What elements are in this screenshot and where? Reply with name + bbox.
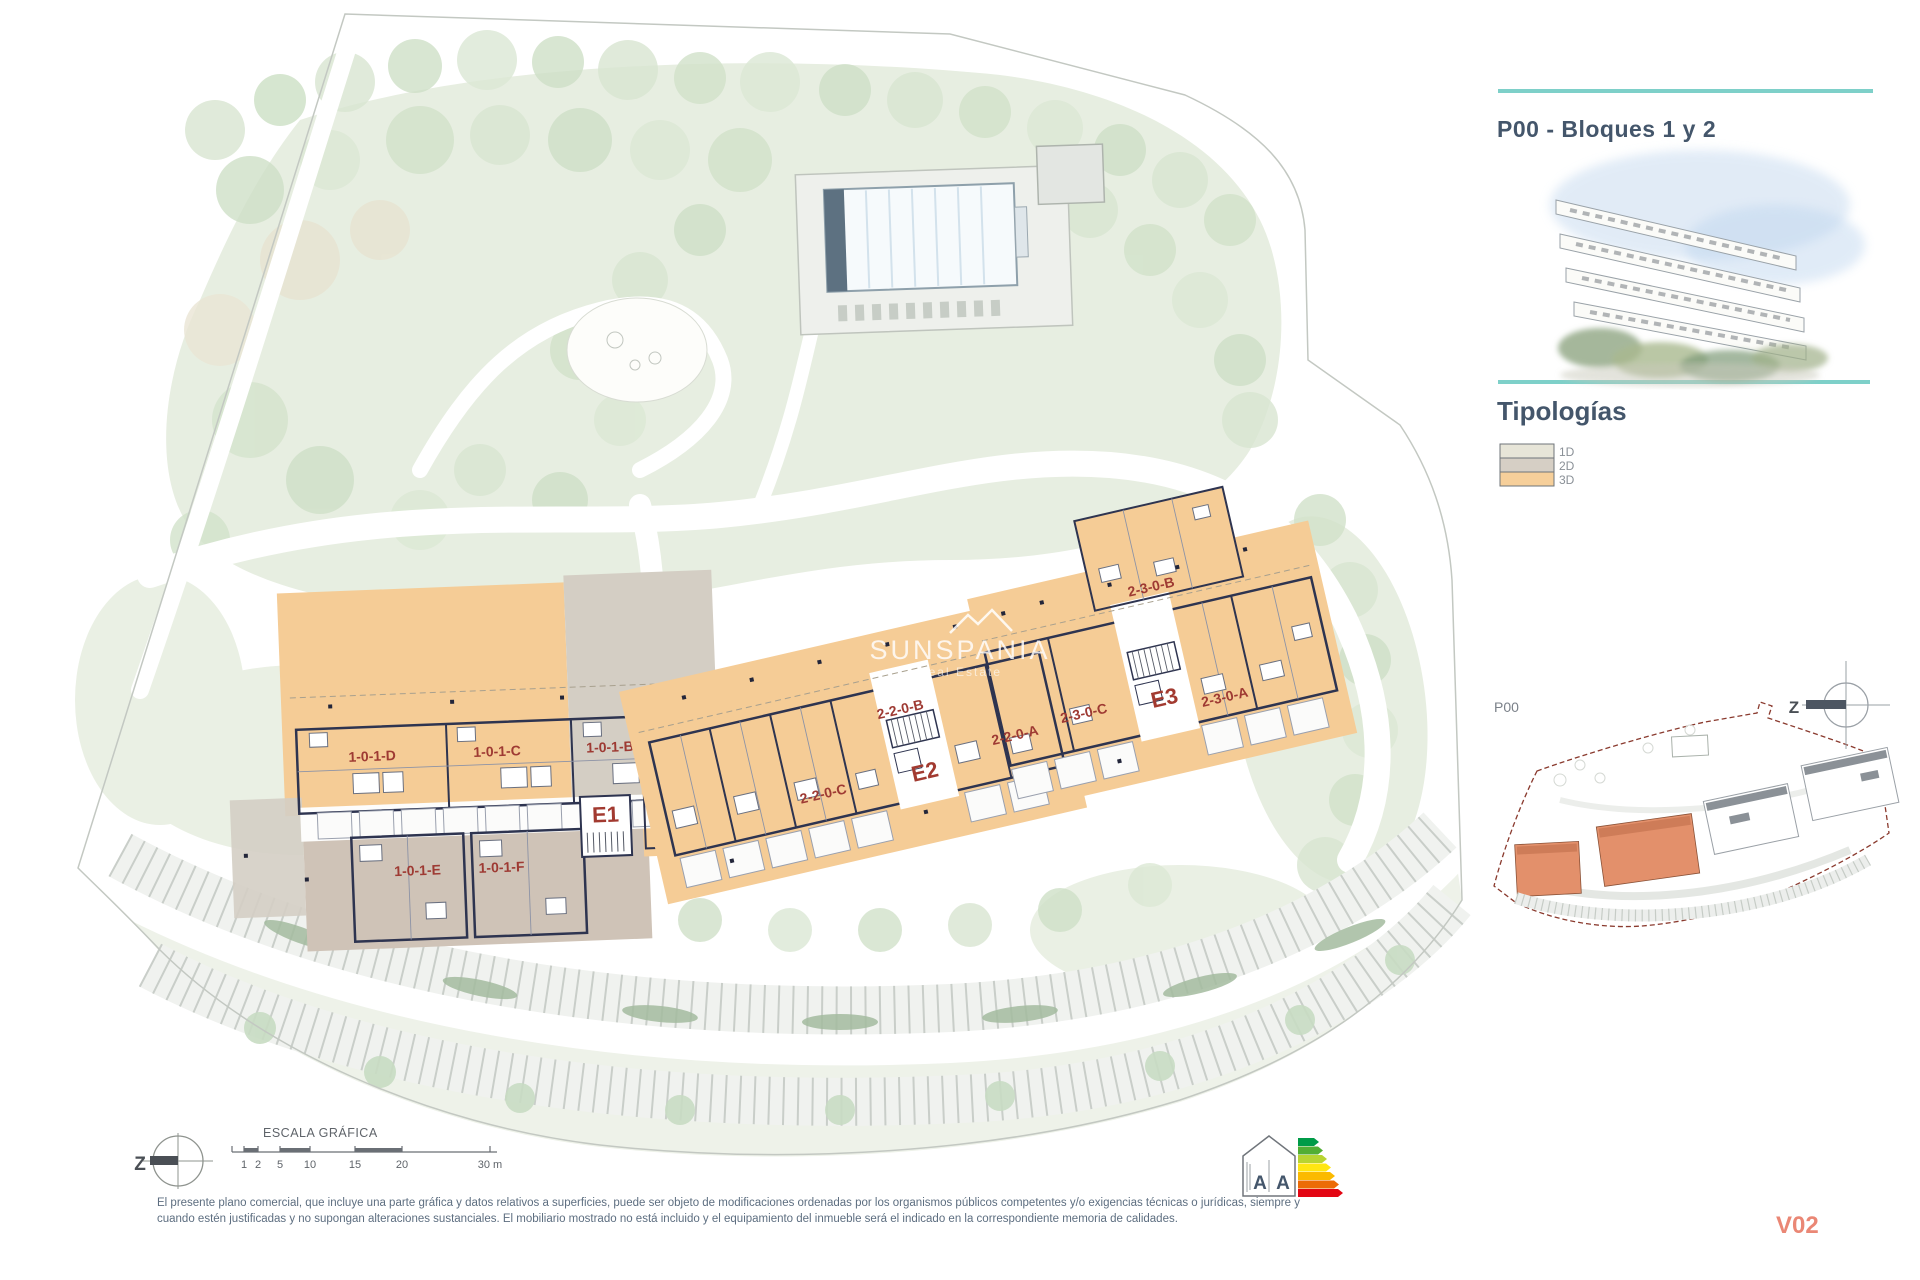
scale-bar: ESCALA GRÁFICA 1 2 5 10 15 20 30 m (232, 1125, 502, 1171)
unit-label-1-0-1-b: 1-0-1-B (586, 738, 634, 756)
minimap-block2-highlight (1596, 814, 1699, 887)
energy-letter-a2: A (1276, 1173, 1290, 1194)
unit-label-1-0-1-e: 1-0-1-E (394, 861, 441, 879)
minimap-block1-highlight (1515, 841, 1582, 896)
building-render-image (1550, 150, 1865, 387)
legend-swatch-3d (1500, 472, 1554, 486)
legend-label-1d: 1D (1559, 445, 1575, 459)
core-label-e1: E1 (592, 801, 620, 827)
scale-tick-20: 20 (396, 1159, 408, 1171)
swimming-pool (824, 183, 1017, 292)
compass-letter: Z (134, 1154, 146, 1175)
minimap: P00 (1494, 661, 1899, 927)
disclaimer-line-2: cuando estén justificadas y no supongan … (157, 1212, 1537, 1228)
unit-label-1-0-1-c: 1-0-1-C (473, 742, 521, 760)
energy-arrow-scale (1298, 1138, 1343, 1197)
legend-label-3d: 3D (1559, 473, 1575, 487)
scale-tick-30m: 30 m (478, 1159, 502, 1171)
plan-sheet: 1-0-1-D 1-0-1-C 1-0-1-B 1-0-1-A 1-0-1-E … (0, 0, 1920, 1280)
unit-label-1-0-1-d: 1-0-1-D (348, 747, 396, 765)
pool-pavilion (1036, 144, 1104, 204)
scale-bar-title: ESCALA GRÁFICA (263, 1125, 378, 1140)
version-label: V02 (1776, 1212, 1819, 1240)
pool-area (795, 144, 1109, 335)
energy-rating-icon: A A (1243, 1136, 1343, 1197)
playground (567, 298, 707, 402)
unit-label-1-0-1-f: 1-0-1-F (478, 858, 525, 876)
site-plan-svg: 1-0-1-D 1-0-1-C 1-0-1-B 1-0-1-A 1-0-1-E … (0, 0, 1920, 1280)
watermark-tagline: Real Estate (918, 665, 1002, 679)
watermark-brand: SUNSPANIA (869, 635, 1050, 665)
tipologias-heading: Tipologías (1497, 396, 1627, 427)
minimap-compass: Z (1789, 661, 1890, 749)
page-title: P00 - Bloques 1 y 2 (1497, 116, 1716, 143)
legend-swatch-2d (1500, 458, 1554, 472)
compass-main: Z (134, 1133, 213, 1189)
scale-tick-1: 1 (241, 1159, 247, 1171)
scale-tick-15: 15 (349, 1159, 361, 1171)
minimap-compass-letter: Z (1789, 698, 1799, 717)
disclaimer-line-1: El presente plano comercial, que incluye… (157, 1196, 1537, 1212)
scale-tick-5: 5 (277, 1159, 283, 1171)
scale-tick-10: 10 (304, 1159, 316, 1171)
tipologias-legend: 1D 2D 3D (1500, 444, 1575, 487)
accent-rule-top (1498, 89, 1873, 93)
scale-tick-2: 2 (255, 1159, 261, 1171)
energy-letter-a1: A (1253, 1173, 1267, 1194)
legend-label-2d: 2D (1559, 459, 1575, 473)
legend-swatch-1d (1500, 444, 1554, 458)
minimap-label: P00 (1494, 699, 1519, 715)
